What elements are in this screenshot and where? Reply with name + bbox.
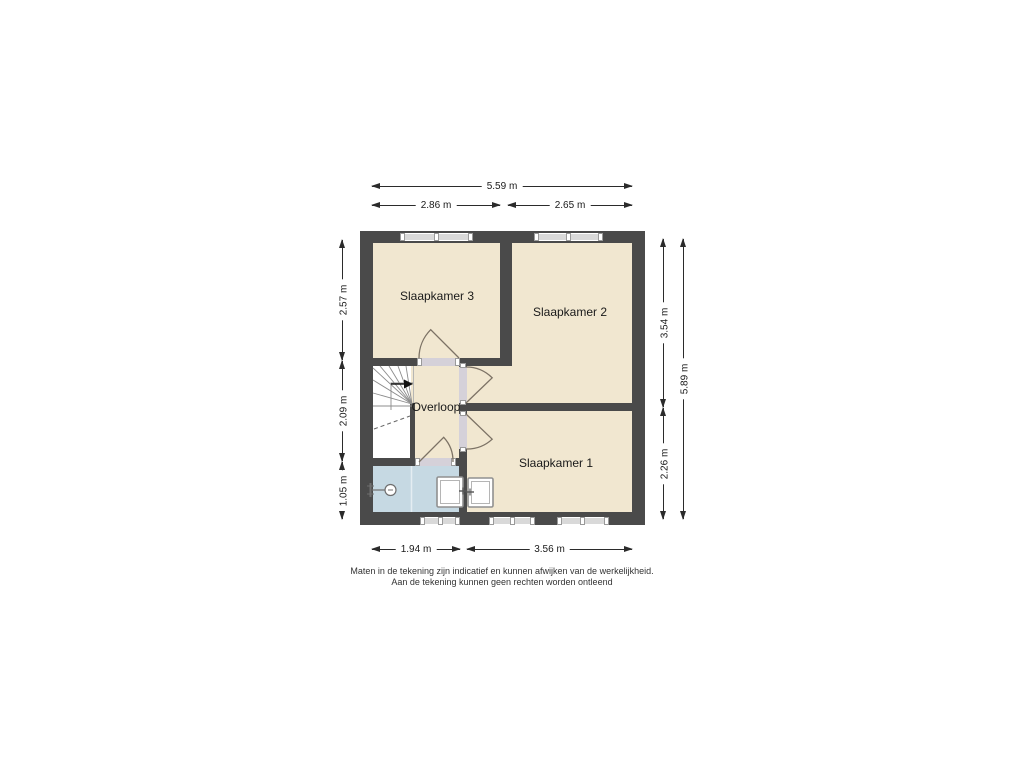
dim-right-bottom: 2.26 m	[663, 408, 664, 519]
dim-left-top: 2.57 m	[342, 240, 343, 360]
window-mullion	[530, 517, 535, 525]
door-jamb	[415, 458, 420, 466]
window-mullion	[438, 517, 443, 525]
dim-label: 2.57 m	[338, 280, 349, 321]
door-threshold-slaapkamer3	[419, 358, 458, 366]
window-mullion	[510, 517, 515, 525]
disclaimer-line-2: Aan de tekening kunnen geen rechten word…	[302, 577, 702, 588]
window-mullion	[468, 233, 473, 241]
disclaimer: Maten in de tekening zijn indicatief en …	[302, 566, 702, 588]
window-mullion	[566, 233, 571, 241]
dim-label: 3.56 m	[529, 544, 570, 555]
door-threshold-bathroom	[419, 458, 453, 466]
dim-top-right: 2.65 m	[508, 205, 632, 206]
door-jamb	[460, 363, 466, 368]
window-mullion	[534, 233, 539, 241]
dim-right-total: 5.89 m	[683, 239, 684, 519]
room-label-overloop: Overloop	[396, 400, 476, 414]
room-label-slaapkamer-2: Slaapkamer 2	[510, 305, 630, 319]
window-mullion	[604, 517, 609, 525]
dim-left-middle: 2.09 m	[342, 361, 343, 461]
room-label-slaapkamer-1: Slaapkamer 1	[496, 456, 616, 470]
door-jamb	[451, 458, 456, 466]
dim-label: 1.94 m	[396, 544, 437, 555]
dim-label: 2.86 m	[416, 200, 457, 211]
window-mullion	[420, 517, 425, 525]
dim-label: 1.05 m	[338, 470, 349, 511]
disclaimer-line-1: Maten in de tekening zijn indicatief en …	[302, 566, 702, 577]
door-threshold-slaapkamer2	[459, 367, 467, 403]
window-mullion	[580, 517, 585, 525]
door-jamb	[460, 447, 466, 452]
dim-bottom-left: 1.94 m	[372, 549, 460, 550]
wall-between-slaapkamer2-slaapkamer1	[459, 403, 632, 411]
dim-label: 5.89 m	[679, 359, 690, 400]
dim-label: 3.54 m	[659, 303, 670, 344]
room-label-slaapkamer-3: Slaapkamer 3	[377, 289, 497, 303]
window-mullion	[400, 233, 405, 241]
window-mullion	[598, 233, 603, 241]
door-threshold-slaapkamer1	[459, 414, 467, 449]
dim-top-total: 5.59 m	[372, 186, 632, 187]
window-mullion	[434, 233, 439, 241]
dim-bottom-right: 3.56 m	[467, 549, 632, 550]
door-jamb	[417, 358, 422, 366]
bathroom-area	[373, 466, 459, 512]
exterior-wall-right	[632, 231, 645, 525]
window-mullion	[489, 517, 494, 525]
dim-top-left: 2.86 m	[372, 205, 500, 206]
dim-right-top: 3.54 m	[663, 239, 664, 407]
dim-label: 2.09 m	[338, 391, 349, 432]
floor-plan-page: Slaapkamer 3 Slaapkamer 2 Slaapkamer 1 O…	[0, 0, 1024, 768]
window-mullion	[557, 517, 562, 525]
dim-label: 2.26 m	[659, 443, 670, 484]
window-mullion	[455, 517, 460, 525]
dim-left-bottom: 1.05 m	[342, 462, 343, 519]
dim-label: 2.65 m	[550, 200, 591, 211]
dim-label: 5.59 m	[482, 181, 523, 192]
exterior-wall-left	[360, 231, 373, 525]
